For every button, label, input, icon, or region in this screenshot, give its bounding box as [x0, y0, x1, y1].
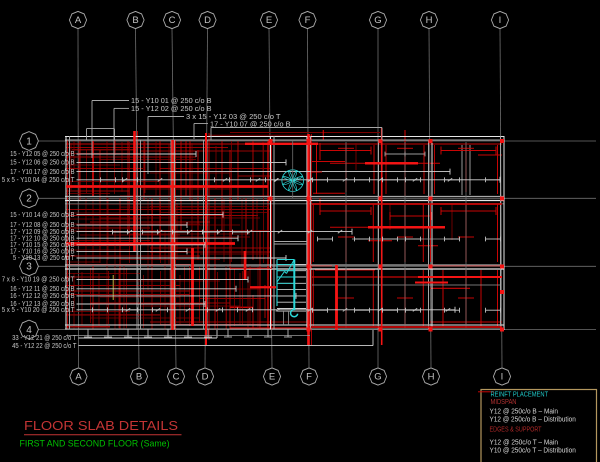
svg-text:H: H — [426, 15, 433, 26]
svg-text:16 - Y12 11 @ 250 c/o B: 16 - Y12 11 @ 250 c/o B — [10, 286, 75, 293]
svg-text:A: A — [75, 15, 82, 26]
svg-text:15 - Y10 01 @ 250 c/o B: 15 - Y10 01 @ 250 c/o B — [131, 98, 212, 105]
svg-text:7 x 8 - Y10 19 @ 250 c/o T: 7 x 8 - Y10 19 @ 250 c/o T — [2, 277, 75, 284]
svg-text:17 - Y10 07 @ 250 c/o B: 17 - Y10 07 @ 250 c/o B — [210, 122, 291, 129]
svg-text:REINFT PLACEMENT: REINFT PLACEMENT — [491, 392, 549, 399]
svg-text:FIRST AND SECOND FLOOR (Same): FIRST AND SECOND FLOOR (Same) — [20, 439, 170, 449]
svg-text:4: 4 — [26, 325, 32, 336]
svg-text:EDGES & SUPPORT: EDGES & SUPPORT — [490, 426, 543, 433]
svg-text:FLOOR SLAB DETAILS: FLOOR SLAB DETAILS — [24, 418, 178, 433]
svg-text:16 - Y12 12 @ 250 c/o B: 16 - Y12 12 @ 250 c/o B — [10, 293, 75, 300]
svg-text:G: G — [374, 15, 381, 26]
svg-text:A: A — [75, 372, 82, 383]
svg-text:C: C — [169, 15, 176, 26]
svg-text:45 - Y12 22 @ 250 c/o T: 45 - Y12 22 @ 250 c/o T — [12, 343, 77, 350]
svg-text:Y12 @ 250c/o T – Main: Y12 @ 250c/o T – Main — [490, 439, 559, 446]
svg-text:15 - Y10 14 @ 250 c/o B: 15 - Y10 14 @ 250 c/o B — [10, 212, 75, 219]
svg-text:C: C — [173, 372, 180, 383]
svg-text:G: G — [374, 372, 381, 383]
svg-text:F: F — [306, 372, 312, 383]
svg-text:I: I — [499, 15, 502, 26]
svg-text:17 - Y10 17 @ 250 c/o B: 17 - Y10 17 @ 250 c/o B — [10, 169, 75, 176]
svg-text:5 x 5 - Y10 20 @ 250 c/o T: 5 x 5 - Y10 20 @ 250 c/o T — [2, 307, 75, 314]
svg-text:Y10 @ 250c/o T – Distribution: Y10 @ 250c/o T – Distribution — [490, 447, 576, 454]
svg-text:3 x 15 - Y12 03 @ 250 c/o T: 3 x 15 - Y12 03 @ 250 c/o T — [186, 114, 281, 121]
svg-text:E: E — [269, 372, 275, 383]
svg-text:15 - Y12 06 @ 250 c/o B: 15 - Y12 06 @ 250 c/o B — [10, 160, 75, 167]
svg-text:I: I — [501, 372, 504, 383]
svg-text:H: H — [428, 372, 435, 383]
svg-text:MIDSPAN: MIDSPAN — [491, 399, 517, 406]
svg-text:15 - Y12 02 @ 250 c/o B: 15 - Y12 02 @ 250 c/o B — [131, 106, 212, 113]
svg-text:D: D — [204, 15, 211, 26]
svg-text:Y12 @ 250c/o B – Main: Y12 @ 250c/o B – Main — [490, 408, 559, 415]
svg-text:3: 3 — [26, 262, 32, 273]
svg-text:D: D — [202, 372, 209, 383]
svg-text:2: 2 — [26, 194, 32, 205]
svg-text:1: 1 — [26, 136, 32, 147]
svg-text:B: B — [136, 372, 142, 383]
svg-text:B: B — [132, 15, 138, 26]
svg-text:5 x 5 - Y10 04 @ 250 c/o T: 5 x 5 - Y10 04 @ 250 c/o T — [2, 177, 75, 184]
svg-text:Y12 @ 250c/o B – Distribution: Y12 @ 250c/o B – Distribution — [490, 416, 576, 423]
svg-text:E: E — [266, 15, 272, 26]
svg-text:F: F — [305, 15, 311, 26]
svg-text:33 - Y12 21 @ 250 c/o T: 33 - Y12 21 @ 250 c/o T — [12, 335, 77, 342]
svg-text:15 - Y12 05 @ 250 c/o B: 15 - Y12 05 @ 250 c/o B — [10, 151, 75, 158]
